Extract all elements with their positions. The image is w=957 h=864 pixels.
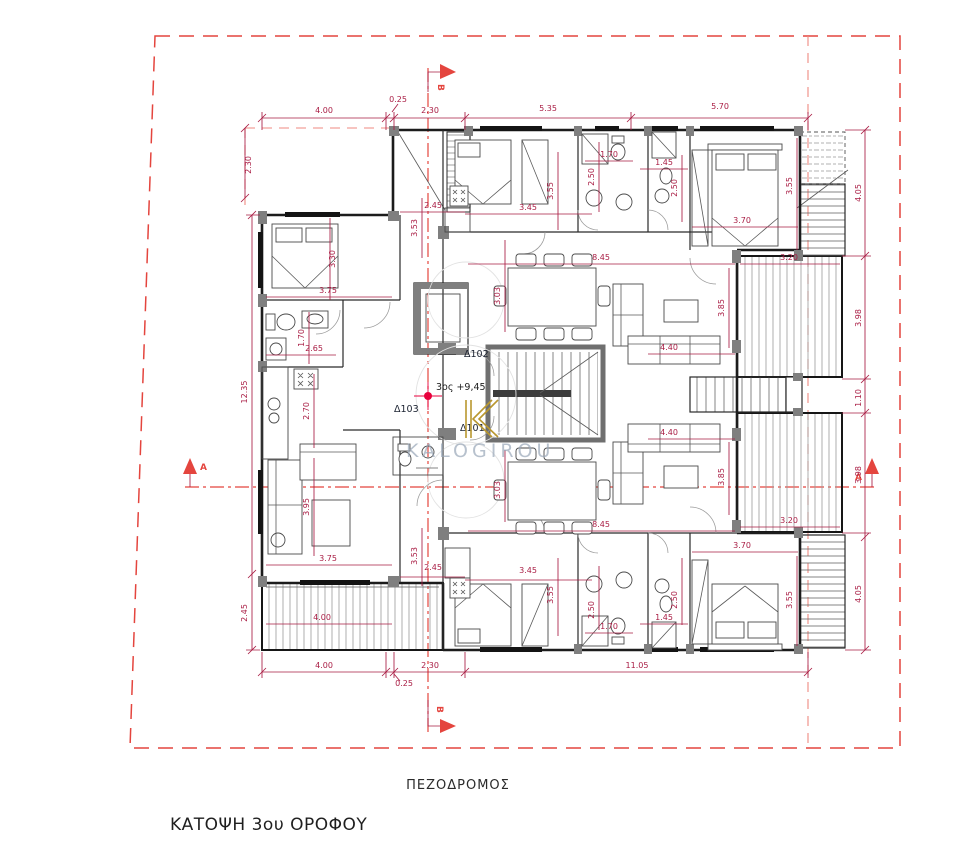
section-arrow-b-bottom [440, 719, 456, 733]
dimension-label: 2.45 [424, 563, 442, 572]
living-left [268, 444, 356, 554]
dimension-label: 3.53 [410, 219, 419, 237]
balcony-bottom-left [262, 583, 443, 650]
dimension-label: 4.40 [660, 343, 678, 352]
page-title: ΚΑΤΟΨΗ 3ου ΟΡΟΦΟΥ [170, 815, 367, 835]
dimension-label: 3.30 [328, 250, 337, 268]
dimension-label: 3.53 [410, 547, 419, 565]
dimension-label: 2.45 [424, 201, 442, 210]
dimension-label: 3.70 [733, 541, 751, 550]
dimension-label: 2.30 [421, 661, 439, 670]
dimension-label: 2.70 [302, 402, 311, 420]
dimension-label: 4.00 [315, 661, 333, 670]
dimension-label: 3.95 [302, 498, 311, 516]
dimension-label: 1.45 [655, 158, 673, 167]
dimension-label: 8.45 [592, 520, 610, 529]
corridor-stair-right [690, 377, 802, 412]
section-arrow-a-right [865, 458, 879, 474]
unit-label-d102: Δ102 [464, 349, 489, 360]
dimension-label: 3.20 [780, 516, 798, 525]
dimension-label: 3.85 [717, 468, 726, 486]
bathrooms-lower [582, 572, 676, 648]
dimension-label: 3.75 [319, 554, 337, 563]
dimension-label: 3.55 [546, 586, 555, 604]
dimension-label: 12.35 [240, 381, 249, 404]
dimension-label: 4.05 [854, 585, 863, 603]
balcony-bottom-right [737, 413, 842, 532]
balcony-top-right [737, 256, 842, 377]
dimension-label: 0.25 [389, 95, 407, 104]
dimension-label: 1.45 [655, 613, 673, 622]
level-marker: 3ος +9,45 [414, 382, 486, 410]
dimension-label: 4.05 [854, 184, 863, 202]
dimension-label: 2.45 [240, 604, 249, 622]
dimension-label: 8.45 [592, 253, 610, 262]
dimension-label: 3.20 [780, 253, 798, 262]
dimension-label: 1.70 [297, 329, 306, 347]
dimension-label: 3.45 [519, 203, 537, 212]
dimension-label: 3.85 [717, 299, 726, 317]
dimension-label: 3.75 [319, 286, 337, 295]
dimension-label: 4.00 [313, 613, 331, 622]
dimension-label: 4.00 [315, 106, 333, 115]
dimension-label: 5.70 [711, 102, 729, 111]
dimension-label: 3.03 [493, 287, 502, 305]
bedroom-upper-middle [455, 140, 548, 204]
bathrooms-upper [582, 132, 676, 210]
dimension-label: 1.70 [600, 150, 618, 159]
dimension-label: 2.50 [587, 168, 596, 186]
bedroom-top-right [692, 144, 782, 246]
dimension-label: 0.25 [395, 679, 413, 688]
section-label-b-top: Β [435, 84, 445, 91]
section-label-a-left: Α [200, 463, 207, 473]
dimension-label: 2.65 [305, 344, 323, 353]
dimension-label: 2.50 [587, 601, 596, 619]
level-marker-dot [424, 392, 432, 400]
dimension-label: 4.40 [660, 428, 678, 437]
section-arrow-a-left [183, 458, 197, 474]
dimension-label: 5.35 [539, 104, 557, 113]
dimension-label: 3.70 [733, 216, 751, 225]
bedroom-bottom-right [692, 560, 782, 650]
kitchen-lower-middle [445, 548, 470, 598]
dimension-label: 1.10 [854, 389, 863, 407]
dimension-label: 3.98 [854, 309, 863, 327]
dimension-label: 2.50 [670, 591, 679, 609]
street-label: ΠΕΖΟΔΡΟΜΟΣ [406, 778, 510, 793]
section-arrow-b-top [440, 64, 456, 79]
dimension-label: 3.55 [546, 182, 555, 200]
unit-label-d101: Δ101 [460, 423, 485, 434]
unit-label-d103: Δ103 [394, 404, 419, 415]
level-note: 3ος +9,45 [436, 382, 486, 393]
external-stair-top-right [797, 132, 848, 256]
floor-plan-canvas: Α Α Β Β [0, 0, 957, 864]
section-label-b-bottom: Β [434, 706, 444, 713]
watermark-text: KALOGIROU [406, 440, 554, 462]
dimension-label: 3.98 [854, 466, 863, 484]
external-stair-bottom-right [800, 535, 845, 648]
dimension-label: 3.45 [519, 566, 537, 575]
dimension-label: 3.55 [785, 591, 794, 609]
dimension-label: 1.70 [600, 622, 618, 631]
dimension-label: 3.55 [785, 177, 794, 195]
dimension-label: 3.03 [493, 481, 502, 499]
dimension-label: 2.30 [244, 156, 253, 174]
dimension-label: 11.05 [626, 661, 649, 670]
dimension-label: 2.50 [670, 179, 679, 197]
dimension-label: 2.30 [421, 106, 439, 115]
